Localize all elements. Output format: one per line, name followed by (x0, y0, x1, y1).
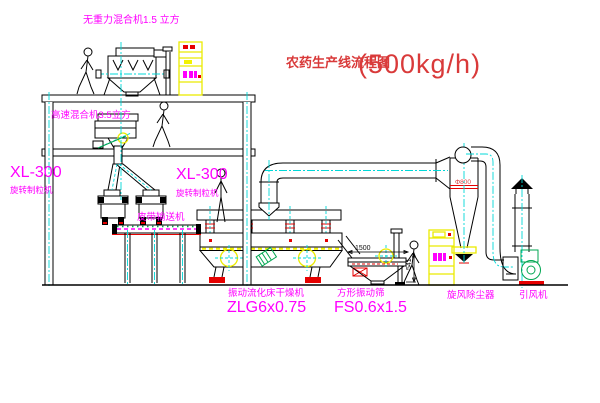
label-fan: 引风机 (519, 289, 548, 301)
granulator-left (98, 196, 128, 225)
labels: 农药生产线流程图 (500kg/h) 无重力混合机1.5 立方 高速混合机3.5… (10, 13, 548, 316)
induced-draft-fan (503, 250, 544, 285)
label-high-speed-mixer: 高速混合机3.5立方 (51, 109, 131, 121)
label-belt-conveyor: 皮带输送机 (137, 211, 185, 223)
label-granulator-name-left: 旋转制粒机 (10, 185, 53, 195)
label-gravity-mixer: 无重力混合机1.5 立方 (83, 13, 180, 26)
dim-1500: 1500 (355, 245, 371, 252)
label-granulator-name-right: 旋转制粒机 (176, 188, 219, 198)
conveyor-legs (125, 230, 185, 286)
control-cabinet-top (179, 42, 202, 95)
label-sieve-name: 方形振动筛 (337, 287, 385, 299)
cyclone-diameter-text: Φ800 (455, 179, 471, 186)
label-granulator-model-right: XL-300 (176, 166, 228, 183)
drawing-svg: 1500 541 Φ800 (0, 0, 600, 403)
gravity-free-mixer (96, 47, 172, 96)
square-sieve: 1500 541 (338, 229, 416, 285)
label-cyclone: 旋风除尘器 (447, 289, 495, 301)
person-roof (77, 48, 94, 94)
label-sieve-model: FS0.6x1.5 (334, 299, 407, 316)
building-walls (45, 42, 251, 288)
building-slabs (42, 95, 255, 156)
label-dryer-name: 振动流化床干燥机 (228, 287, 305, 299)
process-flow-drawing: 1500 541 Φ800 (0, 0, 600, 403)
label-dryer-model: ZLG6x0.75 (227, 299, 306, 316)
page-title-capacity: (500kg/h) (358, 49, 481, 79)
belt-conveyor (112, 224, 201, 235)
control-cabinet-right (429, 230, 454, 285)
fluid-bed-dryer (197, 206, 342, 283)
person-level2 (153, 102, 170, 147)
label-granulator-model-left: XL-300 (10, 164, 62, 181)
